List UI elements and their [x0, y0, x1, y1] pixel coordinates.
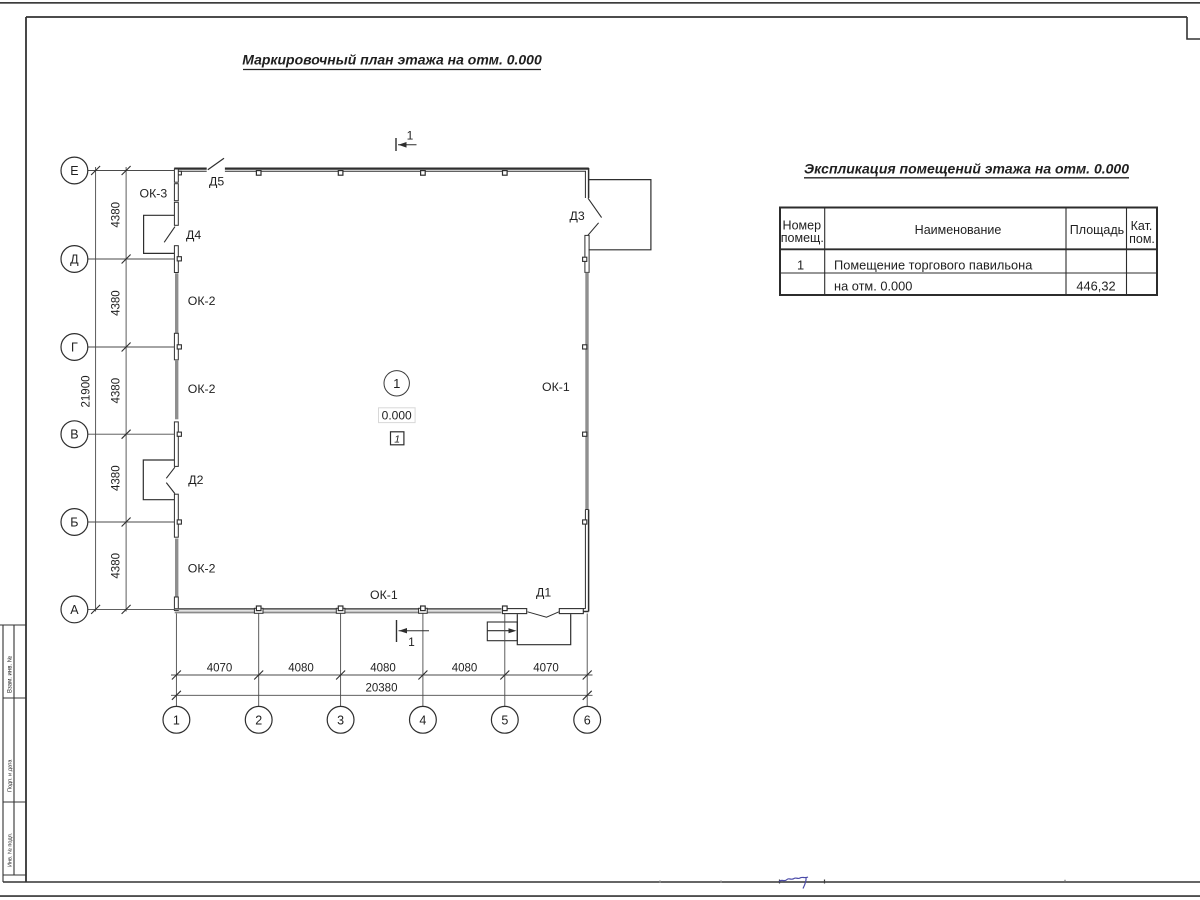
svg-text:6: 6 [584, 713, 591, 727]
svg-text:Помещение торгового павильона: Помещение торгового павильона [834, 257, 1033, 272]
svg-text:1: 1 [173, 713, 180, 727]
svg-text:Маркировочный план этажа на от: Маркировочный план этажа на отм. 0.000 [242, 52, 542, 68]
svg-text:4080: 4080 [370, 663, 396, 675]
svg-text:Экспликация помещений этажа на: Экспликация помещений этажа на отм. 0.00… [804, 161, 1129, 177]
svg-text:ОК-2: ОК-2 [188, 382, 216, 396]
svg-text:4380: 4380 [111, 290, 123, 316]
svg-text:4380: 4380 [111, 465, 123, 491]
svg-text:ОК-2: ОК-2 [188, 562, 216, 576]
svg-text:4080: 4080 [452, 663, 478, 675]
svg-text:Д2: Д2 [188, 473, 203, 487]
svg-text:1: 1 [393, 376, 400, 391]
svg-text:20380: 20380 [366, 682, 398, 694]
svg-text:446,32: 446,32 [1076, 279, 1115, 294]
svg-text:4380: 4380 [111, 378, 123, 404]
svg-text:Подп. и дата: Подп. и дата [8, 759, 14, 792]
svg-text:ОК-3: ОК-3 [140, 187, 168, 201]
svg-text:Д: Д [70, 253, 79, 267]
svg-text:1: 1 [408, 635, 415, 649]
svg-text:А: А [70, 603, 79, 617]
svg-text:4070: 4070 [207, 663, 233, 675]
svg-text:Инв. № подл.: Инв. № подл. [8, 832, 14, 867]
svg-text:Площадь: Площадь [1070, 223, 1124, 237]
svg-text:3: 3 [337, 713, 344, 727]
svg-text:Б: Б [70, 516, 78, 530]
svg-text:Взам. инв. №: Взам. инв. № [7, 656, 14, 693]
svg-text:ОК-1: ОК-1 [370, 588, 398, 602]
svg-text:Д5: Д5 [209, 174, 224, 188]
svg-text:4070: 4070 [533, 663, 559, 675]
svg-text:Кат.: Кат. [1131, 219, 1153, 233]
svg-text:В: В [70, 428, 78, 442]
svg-text:2: 2 [255, 713, 262, 727]
svg-text:Е: Е [70, 164, 78, 178]
svg-text:Наименование: Наименование [915, 223, 1002, 237]
svg-text:4380: 4380 [111, 553, 123, 579]
svg-text:4380: 4380 [111, 202, 123, 228]
svg-text:Д1: Д1 [536, 586, 551, 600]
svg-text:0.000: 0.000 [382, 409, 412, 423]
svg-text:помещ.: помещ. [781, 231, 824, 245]
svg-text:Д4: Д4 [186, 228, 201, 242]
svg-text:4080: 4080 [288, 663, 314, 675]
svg-text:5: 5 [501, 713, 508, 727]
svg-text:ОК-2: ОК-2 [188, 294, 216, 308]
svg-text:1: 1 [394, 433, 400, 445]
svg-text:на отм. 0.000: на отм. 0.000 [834, 279, 912, 294]
svg-text:1: 1 [797, 257, 804, 272]
svg-text:21900: 21900 [80, 376, 92, 408]
svg-text:пом.: пом. [1129, 232, 1155, 246]
svg-text:Г: Г [71, 341, 78, 355]
svg-text:1: 1 [407, 129, 414, 143]
svg-text:Д3: Д3 [570, 209, 585, 223]
svg-text:ОК-1: ОК-1 [542, 380, 570, 394]
svg-text:4: 4 [419, 713, 426, 727]
